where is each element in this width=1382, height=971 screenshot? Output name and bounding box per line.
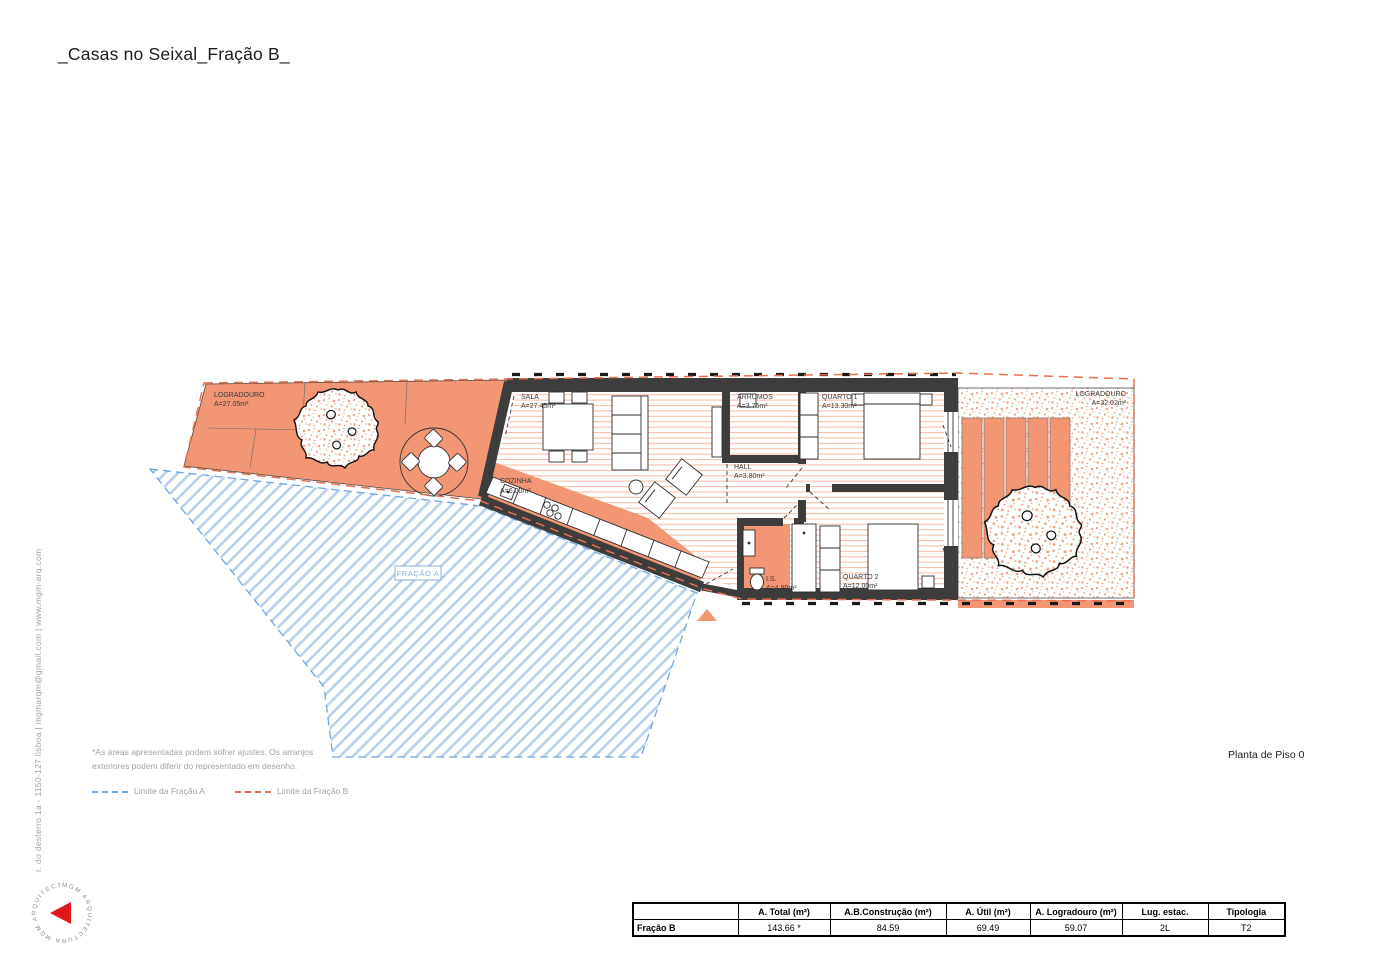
room-label-logradouro-right: LOGRADOURO (1075, 391, 1126, 398)
side-table (629, 480, 643, 494)
legend-label-fracao-a: Limite da Fração A (134, 786, 205, 796)
room-label-quarto2: QUARTO 2 (843, 574, 879, 581)
fracao-a-label-box: FRAÇÃO A (395, 566, 441, 580)
notes-line-1: *As áreas apresentadas podem sofrer ajus… (92, 745, 313, 759)
room-label-logradouro-left: LOGRADOURO (214, 392, 265, 399)
legend-dash-fracao-b (235, 791, 271, 793)
room-label-sala: SALA (521, 394, 539, 401)
room-area-cozinha: A=6.00m² (500, 488, 531, 495)
areas-table: A. Total (m²) A.B.Construção (m²) A. Úti… (632, 902, 1286, 937)
room-area-hall: A=3.80m² (734, 473, 765, 480)
tv-cabinet (712, 407, 722, 457)
cell-a-logradouro: 59.07 (1030, 920, 1122, 937)
studio-contact-vertical: r. do desterro 1a - 1150-127 lisboa | mg… (33, 580, 43, 872)
room-area-sala: A=27.45m² (521, 403, 556, 410)
logo-triangle-icon (50, 902, 71, 924)
room-area-arrumos: A=3.75m² (737, 403, 768, 410)
logradouro-right: LOGRADOURO A=32.02m² (958, 388, 1134, 608)
header-ab-construcao: A.B.Construção (m²) (830, 903, 946, 920)
sofa (612, 396, 648, 470)
fracao-a-label: FRAÇÃO A (397, 569, 440, 578)
room-area-quarto2: A=12.00m² (843, 583, 878, 590)
header-lug-estac: Lug. estac. (1122, 903, 1208, 920)
legend-dash-fracao-a (92, 791, 128, 793)
plan-caption: Planta de Piso 0 (1228, 749, 1304, 761)
cell-a-util: 69.49 (946, 920, 1030, 937)
cell-ab-construcao: 84.59 (830, 920, 946, 937)
room-area-is: A=4.90m² (766, 585, 797, 592)
header-a-util: A. Útil (m²) (946, 903, 1030, 920)
room-area-quarto1: A=13.30m² (822, 403, 857, 410)
legend-label-fracao-b: Limite da Fração B (277, 786, 348, 796)
floor-plan-drawing: FRAÇÃO A LOGRADOURO A=27.05m² (0, 0, 1382, 971)
cell-a-total: 143.66 * (738, 920, 830, 937)
outdoor-table (400, 428, 468, 496)
room-label-cozinha: COZINHA (500, 478, 532, 485)
sheet-title: _Casas no Seixal_Fração B_ (58, 44, 290, 65)
notes: *As áreas apresentadas podem sofrer ajus… (92, 745, 313, 773)
room-label-quarto1: QUARTO 1 (822, 394, 858, 401)
notes-line-2: exteriores podem diferir do representado… (92, 759, 313, 773)
areas-table-data-row: Fração B 143.66 * 84.59 69.49 59.07 2L T… (633, 920, 1285, 937)
entrance-arrow (697, 609, 717, 621)
header-tipologia: Tipologia (1208, 903, 1285, 920)
header-a-logradouro: A. Logradouro (m²) (1030, 903, 1122, 920)
areas-table-header-row: A. Total (m²) A.B.Construção (m²) A. Úti… (633, 903, 1285, 920)
cell-tipologia: T2 (1208, 920, 1285, 937)
mgm-logo: MGM ARQUITECTURA MGM ARQUITECTURA (26, 877, 98, 949)
room-area-logradouro-left: A=27.05m² (214, 401, 249, 408)
room-label-arrumos: ARRUMOS (737, 394, 773, 401)
room-label-hall: HALL (734, 464, 752, 471)
room-label-is: I.S. (766, 576, 777, 583)
header-a-total: A. Total (m²) (738, 903, 830, 920)
cell-lug-estac: 2L (1122, 920, 1208, 937)
room-area-logradouro-right: A=32.02m² (1092, 400, 1127, 407)
cell-fracao-b: Fração B (633, 920, 738, 937)
header-empty (633, 903, 738, 920)
